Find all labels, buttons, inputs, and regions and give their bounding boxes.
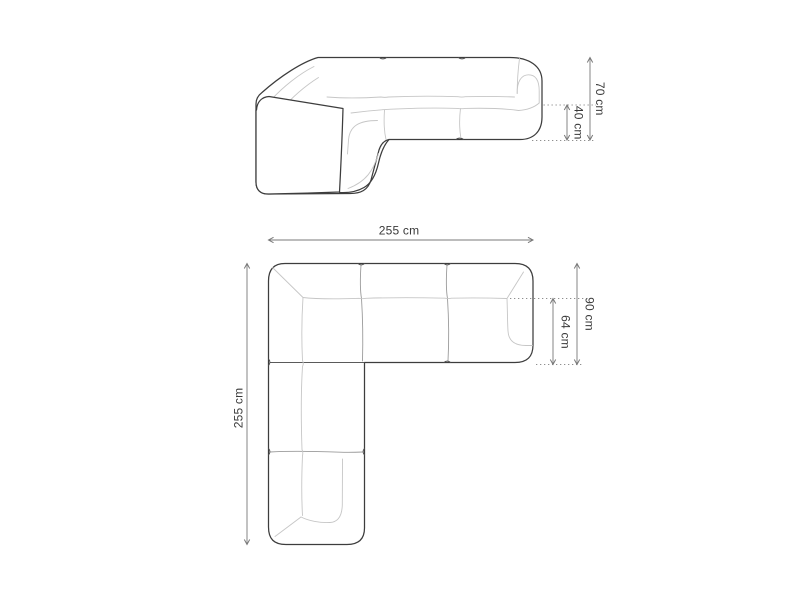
dim-label-seat-height: 40 cm <box>572 106 586 140</box>
plan-sofa-outline <box>269 264 534 545</box>
dim-label-total-height: 70 cm <box>593 82 607 116</box>
sofa-dimension-diagram: 70 cm 40 cm <box>0 0 800 600</box>
dim-label-seat-depth: 64 cm <box>559 315 573 349</box>
diagram-canvas: 70 cm 40 cm <box>0 0 800 600</box>
dim-label-width: 255 cm <box>379 224 420 238</box>
dim-label-arm-depth: 90 cm <box>583 297 597 331</box>
top-plan-view: 255 cm 255 cm 90 cm 64 cm <box>232 224 597 545</box>
front-dimensions: 70 cm 40 cm <box>532 58 607 141</box>
front-corner-arm-panel <box>256 97 343 195</box>
dim-label-depth: 255 cm <box>232 388 246 429</box>
front-elevation-view: 70 cm 40 cm <box>256 58 607 195</box>
